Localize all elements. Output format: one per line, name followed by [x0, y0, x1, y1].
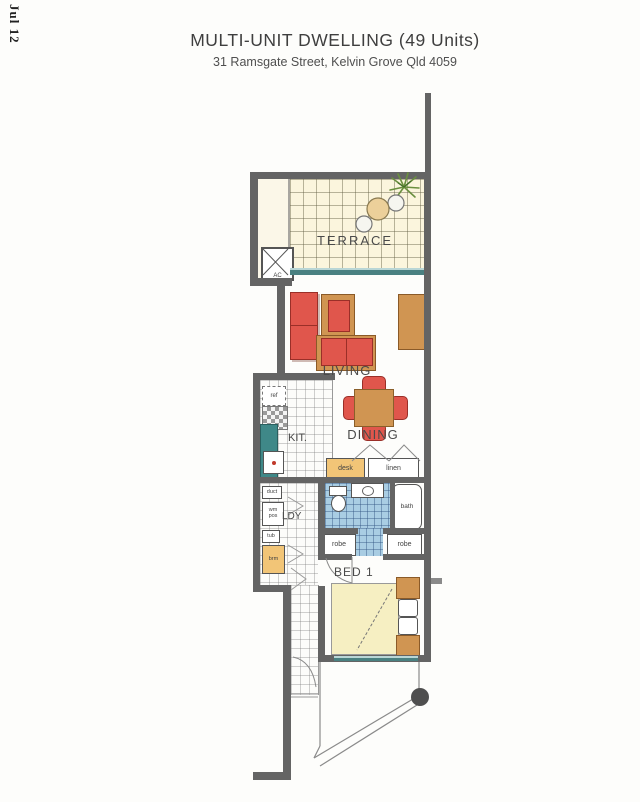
wall-segment [318, 586, 325, 662]
bathtub: bath [392, 484, 422, 530]
bedside-table [396, 577, 420, 599]
terrace-label: TERRACE [305, 233, 405, 248]
pillow [398, 599, 418, 617]
wall-segment [424, 172, 431, 662]
sideboard [398, 294, 426, 350]
pillow [398, 617, 418, 635]
dining-table [354, 389, 394, 427]
fridge: ref [262, 386, 286, 406]
kitchen-sink [263, 451, 284, 474]
laundry-label: LDY [282, 511, 301, 522]
sink-drain [272, 461, 276, 465]
vanity [351, 483, 384, 498]
wm-label: wm pos [266, 508, 280, 520]
ac-unit: AC [261, 247, 294, 281]
robe-right-label: robe [397, 541, 411, 548]
broom-cupboard: brm [262, 545, 285, 574]
scanned-floorplan-page: Jul 12 MULTI-UNIT DWELLING (49 Units) 31… [0, 0, 640, 802]
plan-header: MULTI-UNIT DWELLING (49 Units) 31 Ramsga… [100, 30, 570, 69]
laundry-tub: tub [262, 530, 280, 543]
linen-label: linen [386, 465, 401, 472]
desk-nook: desk [326, 458, 365, 479]
entry-floor [291, 585, 319, 695]
wall-segment [250, 172, 258, 286]
linen-cupboard: linen [368, 458, 419, 479]
living-label: LIVING [317, 363, 377, 378]
wall-segment [277, 278, 285, 379]
robe-left: robe [322, 534, 356, 556]
date-stamp: Jul 12 [6, 4, 22, 44]
bed1-label: BED 1 [334, 565, 374, 579]
bath-label: bath [401, 504, 414, 511]
armchair [321, 294, 355, 336]
wall-segment [283, 585, 291, 780]
wall-segment [318, 554, 352, 560]
toilet-bowl [331, 495, 346, 512]
wall-segment [250, 278, 292, 286]
kitchen-label: KIT. [288, 432, 307, 444]
tub-label: tub [267, 534, 275, 540]
wall-segment [390, 483, 395, 528]
bedside-table [396, 635, 420, 657]
fridge-label: ref [270, 393, 277, 399]
duct-label: duct [267, 490, 277, 496]
courtyard-outline [314, 662, 419, 766]
terrace-floor [290, 179, 424, 269]
plan-subtitle: 31 Ramsgate Street, Kelvin Grove Qld 405… [100, 55, 570, 69]
robe-right: robe [387, 534, 422, 556]
wall-segment [253, 772, 291, 780]
washing-machine-pos: wm pos [262, 502, 284, 526]
sofa-two-seat-vertical [290, 292, 318, 360]
desk-label: desk [338, 465, 353, 472]
basin [362, 486, 374, 496]
wall-segment [253, 477, 424, 483]
wall-segment [250, 172, 431, 179]
wall-segment [318, 483, 325, 556]
bed [331, 583, 399, 655]
plan-title: MULTI-UNIT DWELLING (49 Units) [100, 30, 570, 51]
wall-segment [383, 554, 431, 560]
door-handle-stub [431, 578, 442, 584]
column [411, 688, 429, 706]
wall-segment [318, 528, 358, 534]
robe-left-label: robe [332, 541, 346, 548]
bedroom-window [334, 656, 418, 661]
dining-label: DINING [343, 427, 403, 442]
wall-segment [383, 528, 431, 534]
brm-label: brm [269, 557, 278, 563]
sliding-door [290, 268, 424, 275]
duct: duct [262, 486, 282, 499]
boundary-line [425, 93, 431, 173]
